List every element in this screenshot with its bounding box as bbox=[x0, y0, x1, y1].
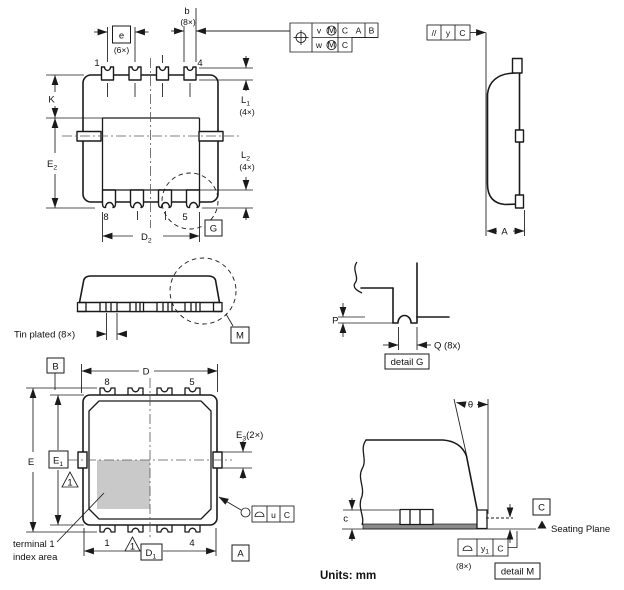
detail-g-ref-label: G bbox=[210, 224, 217, 235]
front-body-outline bbox=[80, 276, 220, 303]
pos-v-datum-b: B bbox=[369, 26, 375, 36]
bottom-view: 8 5 1 4 B D E E1 bbox=[13, 358, 294, 563]
detail-g-caption: detail G bbox=[391, 357, 424, 368]
u-datum-label: C bbox=[284, 510, 290, 520]
u-tolerance-frame: u C bbox=[219, 497, 294, 522]
detail-m-body bbox=[366, 440, 477, 509]
dim-p bbox=[338, 303, 393, 337]
pos-w-label: w bbox=[315, 40, 323, 50]
pos-v-label: v bbox=[317, 26, 322, 36]
dim-l1-note: (4×) bbox=[239, 107, 255, 117]
package-outline-svg: G e (6×) b (8×) 1 4 8 5 bbox=[0, 0, 624, 590]
dim-theta-label: θ bbox=[468, 400, 473, 411]
note-1-label: 1 bbox=[67, 478, 72, 489]
side-tab-bottom bbox=[516, 195, 524, 208]
note-1-triangle-left: 1 bbox=[62, 472, 78, 489]
dim-e-note: (6×) bbox=[114, 45, 130, 55]
note-1-triangle-bottom: 1 bbox=[125, 537, 140, 553]
pos-w-mmc-label: M bbox=[328, 40, 336, 51]
datum-c-label: C bbox=[538, 503, 545, 514]
dim-e-label: e bbox=[119, 31, 124, 42]
dim-b-label: b bbox=[184, 6, 189, 17]
dim-l1-label: L1 bbox=[241, 95, 250, 108]
parallelism-tolerance-frame: // y C bbox=[427, 25, 486, 40]
u-dim-label: u bbox=[271, 510, 276, 520]
pin-1-label: 1 bbox=[94, 58, 99, 69]
detail-g-view: P Q (8x) detail G bbox=[332, 262, 460, 369]
dim-e3-label: E3(2×) bbox=[236, 430, 263, 443]
pos-w-datum-c: C bbox=[342, 40, 348, 50]
detail-g-outline bbox=[361, 263, 449, 323]
position-symbol-icon bbox=[294, 30, 309, 45]
top-pins bbox=[102, 67, 197, 80]
bottom-terminals bbox=[103, 190, 200, 208]
y1-note: (8×) bbox=[456, 561, 472, 571]
par-datum-label: C bbox=[459, 28, 465, 38]
dim-e2-label: E2 bbox=[47, 159, 57, 172]
top-view: G e (6×) b (8×) 1 4 8 5 bbox=[46, 6, 290, 245]
terminal-index-label-2: index area bbox=[13, 552, 58, 563]
side-tab-middle bbox=[516, 130, 524, 142]
dim-l2-label: L2 bbox=[241, 150, 250, 163]
package-outline-drawing: G e (6×) b (8×) 1 4 8 5 bbox=[0, 0, 624, 590]
side-body-outline bbox=[488, 73, 520, 205]
balloon-icon bbox=[241, 508, 250, 517]
dim-c bbox=[343, 498, 399, 541]
detail-m-caption: detail M bbox=[501, 567, 534, 578]
position-tolerance-frame: v M C A B w M C bbox=[197, 23, 379, 52]
bottom-pin-1-label: 1 bbox=[104, 538, 109, 549]
dim-l2 bbox=[199, 177, 253, 220]
dim-c-label: c bbox=[343, 514, 348, 525]
pin-4-label: 4 bbox=[197, 58, 202, 69]
pos-v-mmc-label: M bbox=[328, 25, 336, 36]
front-leads bbox=[100, 303, 200, 312]
pin-center-ticks bbox=[108, 55, 191, 220]
dim-p-label: P bbox=[332, 316, 338, 327]
pin-8-label: 8 bbox=[103, 212, 108, 223]
bottom-pin-5-label: 5 bbox=[189, 377, 194, 388]
dim-e-label: E bbox=[28, 457, 34, 468]
parallelism-symbol: // bbox=[432, 28, 437, 38]
break-line-m bbox=[360, 440, 366, 525]
exposed-pad-outline bbox=[103, 118, 200, 190]
tin-plated-label: Tin plated (8×) bbox=[14, 330, 75, 341]
seating-plane-triangle-icon bbox=[538, 521, 547, 529]
pin-5-label: 5 bbox=[182, 212, 187, 223]
dim-b-note: (8×) bbox=[180, 17, 196, 27]
front-view: M Tin plated (8×) bbox=[14, 258, 249, 343]
datum-b-label: B bbox=[52, 362, 58, 373]
datum-a-label: A bbox=[237, 549, 244, 560]
bottom-pin-4-label: 4 bbox=[189, 538, 194, 549]
detail-m-view: c θ y1 C (8×) C bbox=[342, 399, 610, 579]
terminal1-index-area bbox=[97, 460, 150, 509]
side-tab-top bbox=[513, 59, 523, 74]
terminal-index-label-1: terminal 1 bbox=[13, 539, 55, 550]
detail-m-ref-label: M bbox=[236, 331, 244, 342]
dim-d2-label: D2 bbox=[141, 232, 152, 245]
pos-v-datum-a: A bbox=[356, 26, 362, 36]
bottom-pin-8-label: 8 bbox=[104, 377, 109, 388]
dim-a-label: A bbox=[501, 227, 508, 238]
dim-theta bbox=[454, 399, 488, 514]
dim-y1 bbox=[508, 504, 517, 548]
side-view: A bbox=[486, 33, 525, 238]
dim-l1 bbox=[199, 56, 253, 91]
pos-v-datum-c: C bbox=[342, 26, 348, 36]
y1-datum-label: C bbox=[497, 544, 503, 554]
dim-q-label: Q (8x) bbox=[434, 341, 460, 352]
dim-d-label: D bbox=[143, 367, 150, 378]
tin-plated-callout bbox=[98, 313, 127, 340]
front-end-stub-left bbox=[78, 303, 87, 312]
units-label: Units: mm bbox=[320, 570, 376, 582]
dim-k-label: K bbox=[48, 95, 55, 106]
dim-l2-note: (4×) bbox=[239, 162, 255, 172]
dim-q bbox=[383, 327, 431, 350]
front-end-stub-right bbox=[214, 303, 223, 312]
seating-plane-label: Seating Plane bbox=[551, 524, 610, 535]
